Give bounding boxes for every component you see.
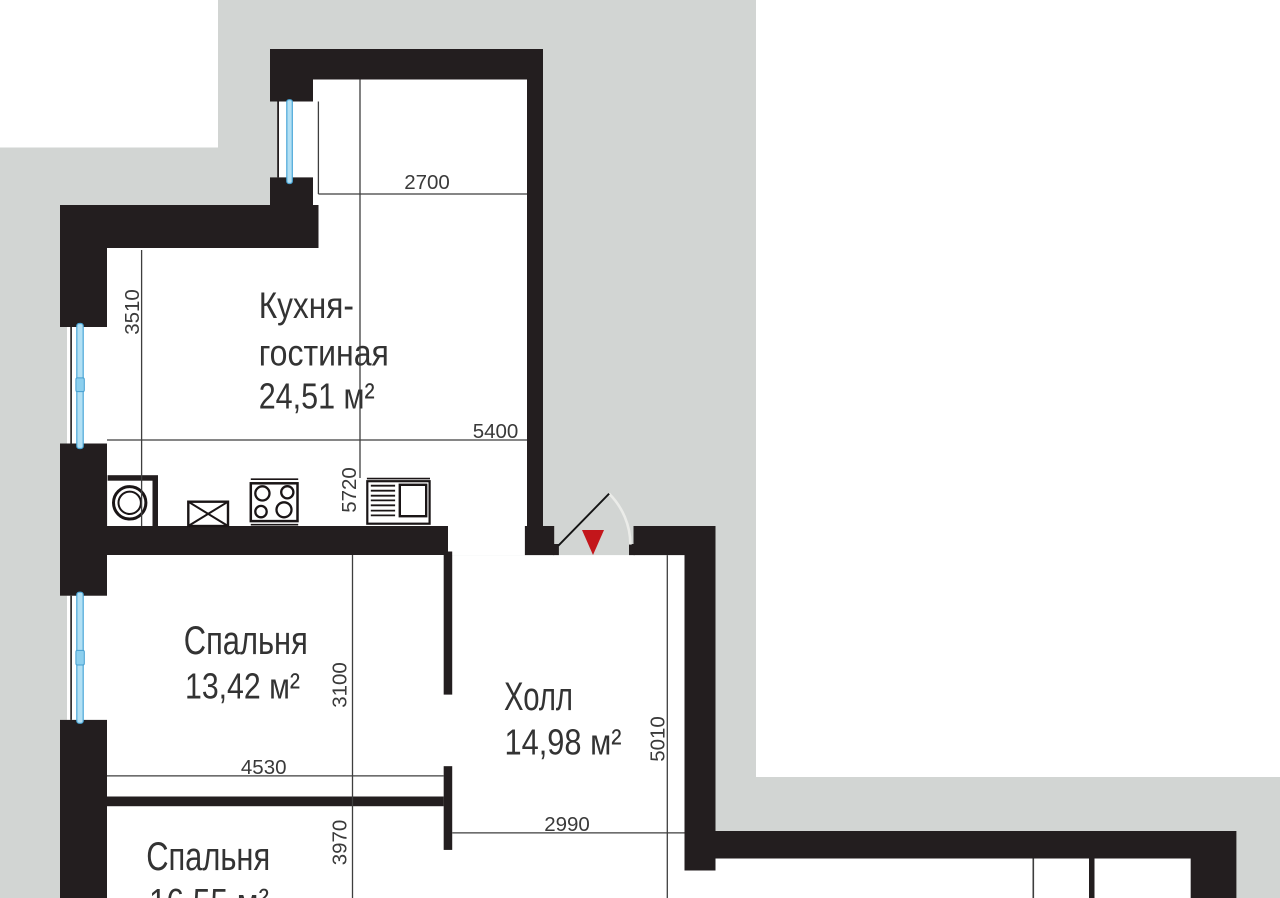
svg-text:Спальня: Спальня [184, 619, 308, 663]
svg-text:2990: 2990 [544, 813, 590, 836]
svg-text:16,55 м²: 16,55 м² [149, 881, 269, 898]
svg-text:3510: 3510 [121, 289, 144, 335]
svg-text:4530: 4530 [241, 756, 287, 779]
svg-text:2700: 2700 [404, 171, 450, 194]
svg-text:5720: 5720 [338, 467, 361, 513]
svg-text:гостиная: гостиная [259, 332, 389, 373]
svg-text:5010: 5010 [647, 716, 670, 762]
svg-text:13,42 м²: 13,42 м² [185, 665, 300, 706]
svg-text:Холл: Холл [504, 675, 573, 719]
svg-text:24,51 м²: 24,51 м² [259, 376, 375, 417]
svg-text:Кухня-: Кухня- [259, 285, 354, 326]
svg-text:3100: 3100 [329, 662, 352, 708]
svg-text:3970: 3970 [329, 820, 352, 866]
svg-text:5400: 5400 [473, 420, 519, 443]
svg-text:14,98 м²: 14,98 м² [505, 722, 622, 763]
svg-text:Спальня: Спальня [146, 835, 270, 879]
